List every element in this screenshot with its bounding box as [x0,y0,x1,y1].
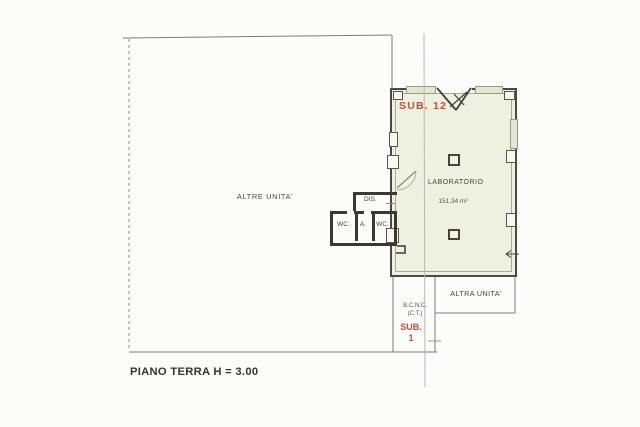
altre-unita-label: ALTRE UNITA' [220,192,310,201]
dis-label: DIS. [364,196,377,203]
wc-block [330,211,397,246]
wc-left-label: WC. [333,221,354,228]
floor-plan-page: ALTRE UNITA' SUB. 12 LABORATORIO 151,34 … [0,0,640,427]
pilaster-top-right [504,91,515,100]
pilaster-right-1 [506,150,516,163]
wc-door-gap-2 [364,211,371,214]
bcnc-label: B.C.N.C. (C.T.) [396,303,434,318]
dis-door-tick [386,203,395,204]
bcnc-line2: (C.T.) [396,311,434,319]
pilaster-left-1 [389,132,398,147]
floor-title: PIANO TERRA H = 3.00 [130,366,258,378]
window-top-right [475,86,503,94]
pillar-upper [448,154,460,166]
laboratorio-name-label: LABORATORIO [428,179,483,186]
pilaster-right-2 [506,213,516,227]
boundary-top-line [123,35,392,38]
dis-wall-top [353,192,397,195]
sub-1-number: 1 [396,333,426,344]
laboratorio-area-label: 151,34 m² [428,198,478,205]
bcnc-line1: B.C.N.C. [396,303,434,311]
pilaster-left-2 [387,155,399,169]
sub-1-label: SUB. 1 [396,322,426,344]
window-top-left [406,86,436,94]
sub-12-label: SUB. 12 [399,100,447,112]
altra-unita-label: ALTRA UNITA' [437,289,515,298]
window-right-wall [510,119,518,149]
wc-right-label: WC. [372,221,393,228]
pillar-lower [448,229,460,240]
wc-door-gap-1 [347,211,354,214]
anti-label: A. [355,221,371,228]
entrance-opening [436,85,472,93]
plan-linework [0,0,640,427]
sub-1-word: SUB. [396,322,426,333]
pilaster-top-left [393,91,403,100]
